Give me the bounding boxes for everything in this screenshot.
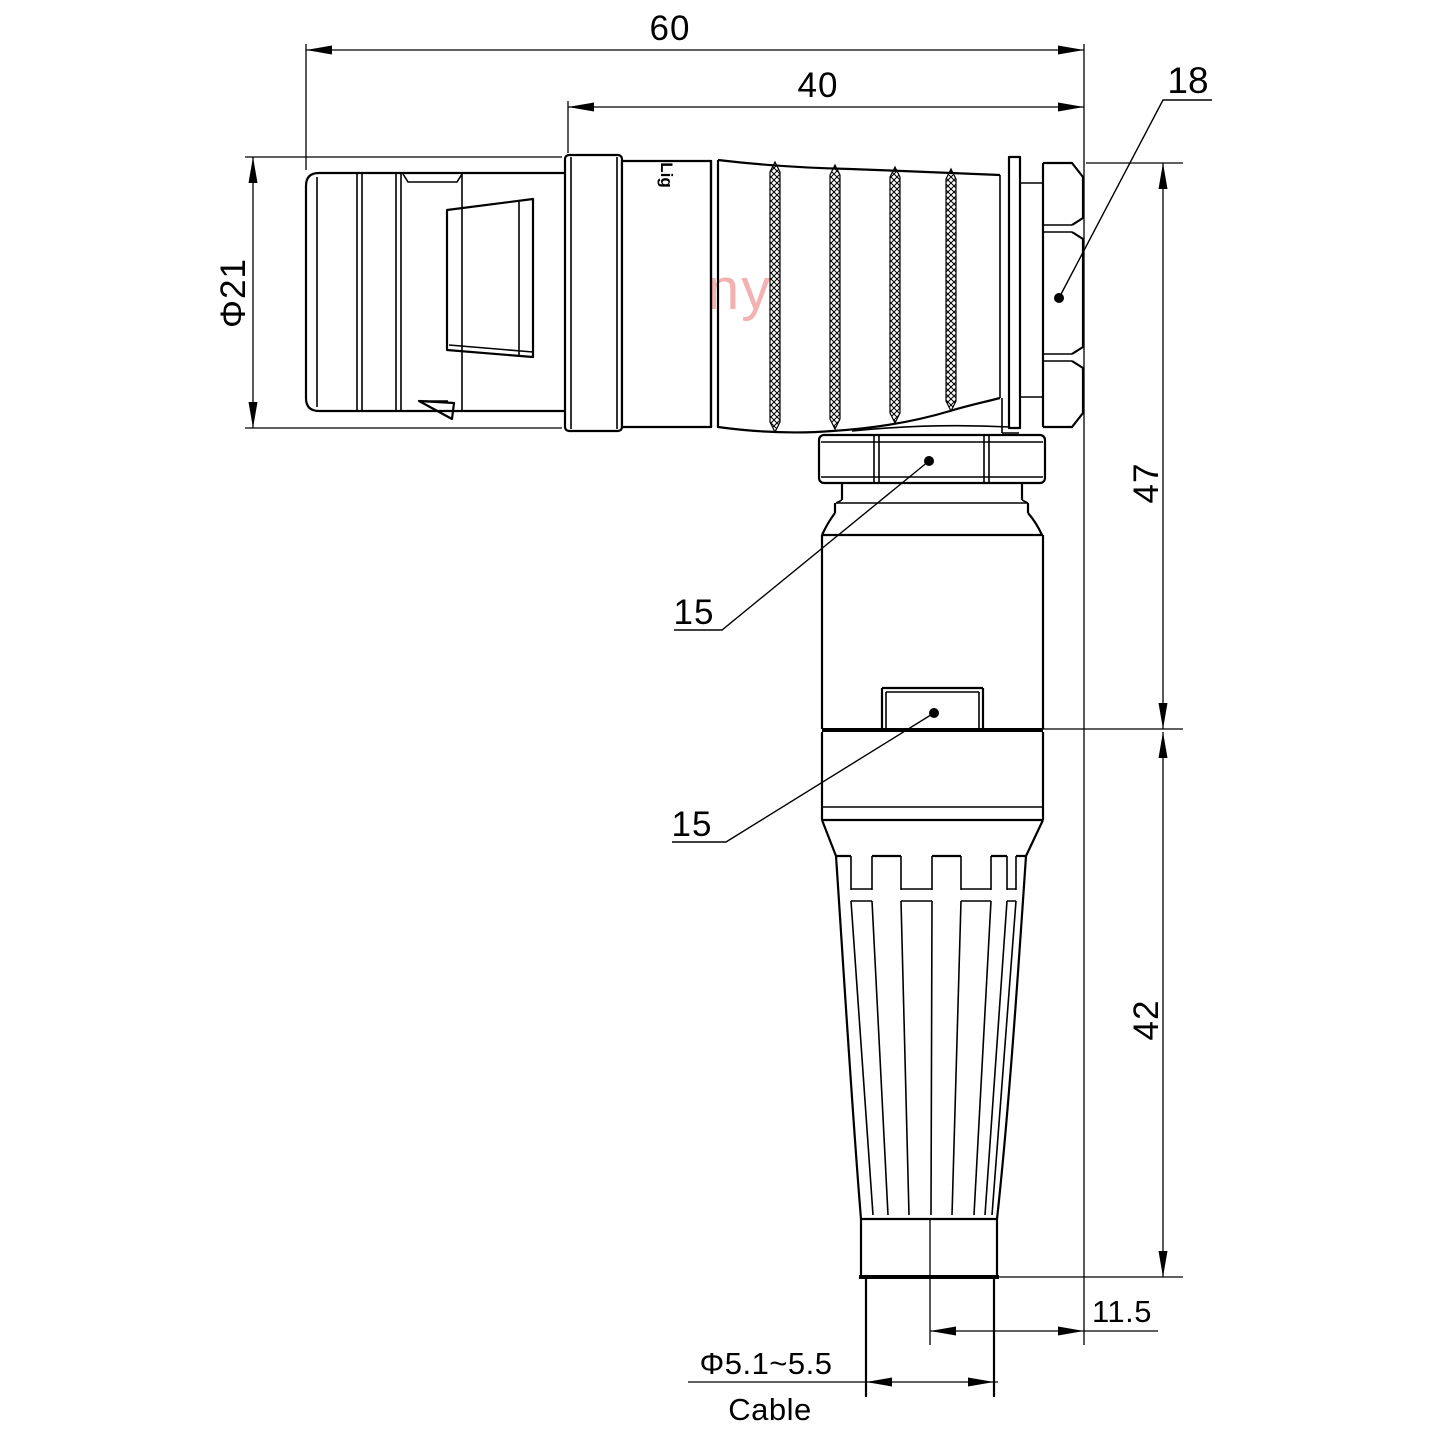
dim-shell-diameter-text: Φ21 xyxy=(214,258,253,328)
dim-lower-height: 42 xyxy=(999,732,1183,1277)
dim-rear-length-text: 40 xyxy=(798,66,839,105)
mid-body: Lig xyxy=(622,161,711,427)
washer xyxy=(1009,157,1020,428)
dim-upper-height: 47 xyxy=(1043,163,1183,729)
dim-overall-length-text: 60 xyxy=(650,9,691,48)
connector-drawing: Lig xyxy=(306,155,1083,1397)
strain-relief xyxy=(836,856,1026,1219)
body-lower xyxy=(822,732,1043,856)
connector-technical-drawing: Lightany xyxy=(0,0,1440,1440)
dim-axis-offset-text: 11.5 xyxy=(1092,1294,1152,1329)
body-upper xyxy=(822,535,1043,731)
plug-shell xyxy=(306,173,567,419)
knurl-band xyxy=(890,167,900,423)
callout-backnut-text: 15 xyxy=(674,593,715,632)
callout-hex-nut-text: 18 xyxy=(1167,60,1208,101)
engraved-logo-text: Lig xyxy=(657,162,676,188)
ferrule xyxy=(859,1219,999,1277)
knurl-band xyxy=(770,162,780,432)
dim-rear-length: 40 xyxy=(568,66,1084,153)
cable xyxy=(866,1219,994,1397)
knurl-band xyxy=(830,165,840,429)
flange xyxy=(565,155,622,431)
technical-drawing-page: Lightany xyxy=(0,0,1440,1440)
dim-cable-diameter: Φ5.1~5.5 Cable xyxy=(688,1346,998,1427)
dim-upper-height-text: 47 xyxy=(1127,463,1166,504)
neck xyxy=(822,483,1042,535)
dim-cable-diameter-text: Φ5.1~5.5 xyxy=(699,1346,832,1381)
callout-housing-text: 15 xyxy=(672,805,713,844)
knurl-band xyxy=(946,169,956,411)
callout-hex-nut: 18 xyxy=(1054,60,1212,303)
dim-axis-offset: 11.5 xyxy=(930,1294,1158,1336)
cable-label-text: Cable xyxy=(728,1392,812,1427)
dim-lower-height-text: 42 xyxy=(1127,1000,1166,1041)
